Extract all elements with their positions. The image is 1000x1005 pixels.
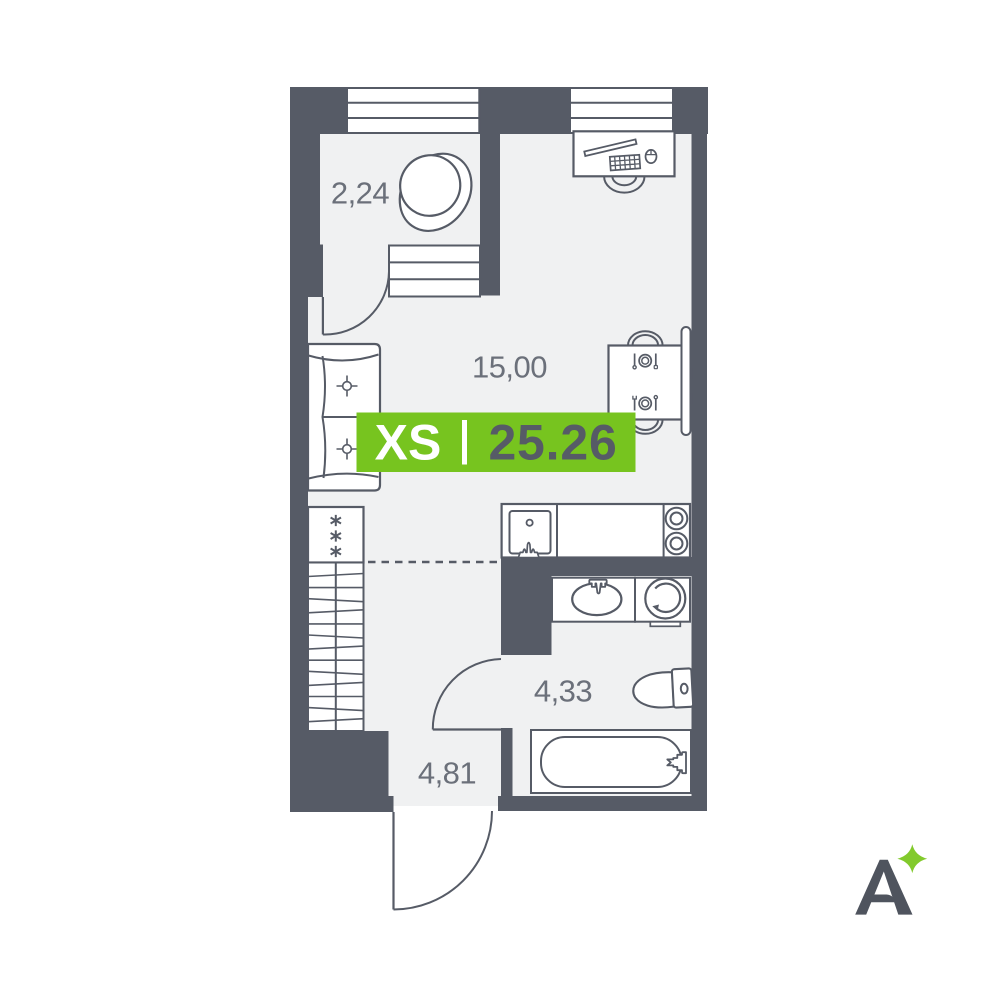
svg-text:XS: XS	[375, 415, 442, 471]
svg-text:15,00: 15,00	[472, 350, 547, 385]
svg-text:4,33: 4,33	[534, 674, 592, 709]
svg-text:25.26: 25.26	[488, 415, 617, 471]
svg-text:4,81: 4,81	[418, 756, 476, 791]
svg-text:2,24: 2,24	[331, 176, 390, 211]
